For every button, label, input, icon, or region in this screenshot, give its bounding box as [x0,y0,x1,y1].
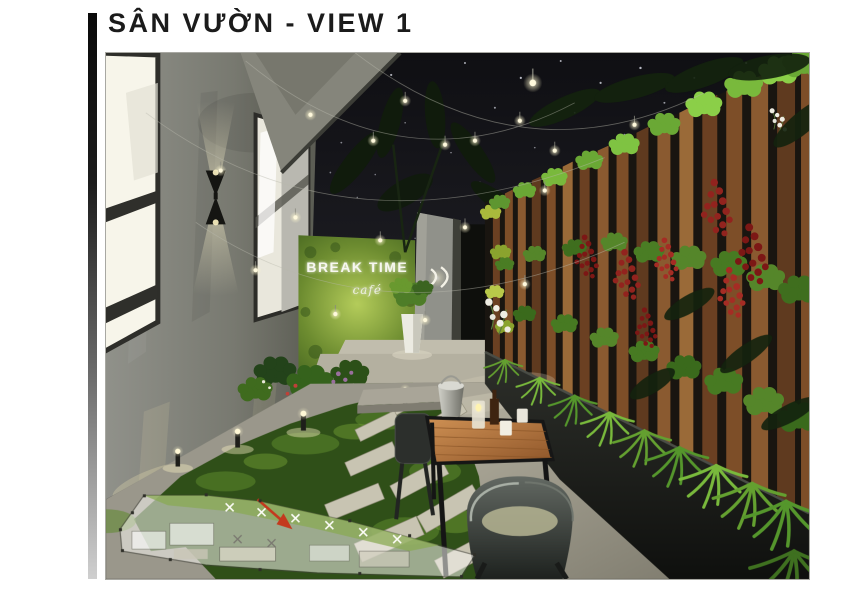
sign-brand-text: BREAK TIME [306,259,408,275]
coffee-cup [500,421,512,436]
render-viewport: BREAK TIME café [105,52,810,580]
page-title: SÂN VƯỜN - VIEW 1 [108,8,413,39]
bottle [490,399,499,425]
metal-bucket [438,376,464,416]
title-accent-bar [88,13,97,579]
garden-render: BREAK TIME café [106,53,809,579]
presentation-page: SÂN VƯỜN - VIEW 1 [0,0,850,600]
sign-script-text: café [353,283,382,297]
coffee-cup-2 [517,409,528,423]
candle-jar [471,401,485,429]
window-left [106,53,158,354]
chair-foreground [467,476,573,579]
